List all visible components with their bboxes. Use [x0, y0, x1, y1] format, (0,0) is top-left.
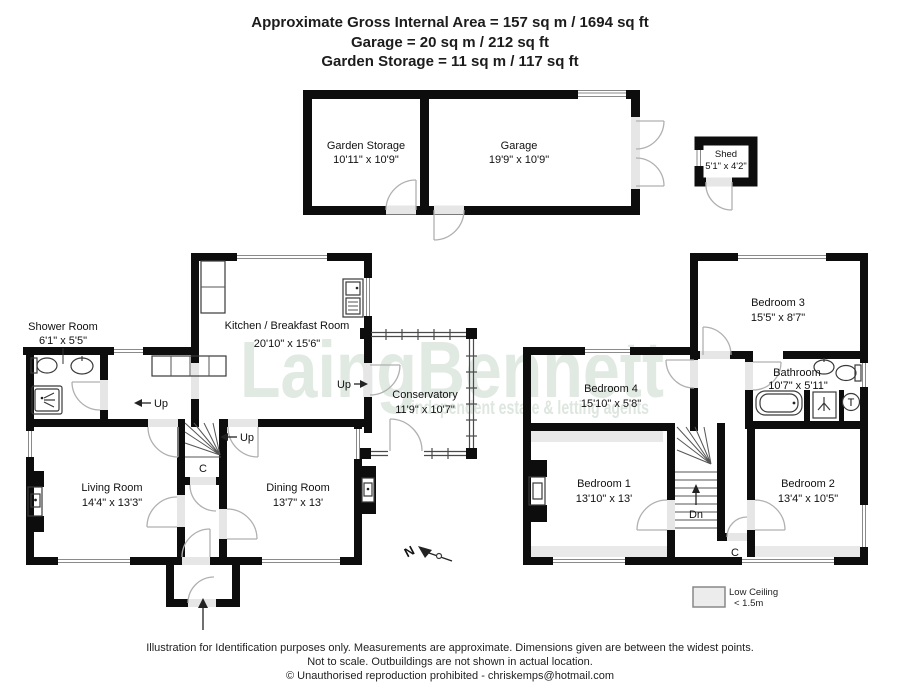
bedroom3-window: [738, 253, 826, 261]
north-arrow: N: [402, 543, 452, 561]
shower-room-basin: [71, 356, 93, 374]
disclaimer-line-2: Not to scale. Outbuildings are not shown…: [0, 655, 900, 669]
water-tank: T: [843, 394, 860, 411]
porch-inner-door: [182, 529, 210, 565]
bedroom4-label: Bedroom 4: [584, 383, 638, 395]
down-label: Dn: [689, 509, 703, 521]
kitchen-side-window: [364, 278, 372, 316]
bathroom-label: Bathroom: [773, 367, 821, 379]
understairs-cupboard-door: [190, 477, 216, 511]
legend-value: < 1.5m: [734, 598, 763, 609]
bathroom-shower: [813, 392, 836, 418]
legend-title: Low Ceiling: [729, 587, 778, 598]
shower-room-label: Shower Room: [28, 321, 98, 333]
svg-text:Up: Up: [154, 398, 168, 410]
landing-cupboard-label: C: [731, 547, 739, 559]
svg-text:Up: Up: [337, 379, 351, 391]
shed-label: Shed: [715, 149, 737, 160]
kitchen-sink: [343, 279, 363, 317]
bedroom4-dims: 15'10" x 5'8": [581, 398, 641, 410]
kitchen-label: Kitchen / Breakfast Room: [225, 320, 350, 332]
landing-cupboard-door: [727, 517, 747, 541]
conservatory-label: Conservatory: [392, 389, 458, 401]
living-room-label: Living Room: [81, 482, 142, 494]
low-ceiling-band-3: [755, 546, 860, 557]
conservatory-garden-door: [390, 419, 422, 451]
ground-stairs: [185, 423, 221, 457]
bathroom-toilet: [836, 365, 861, 381]
bedroom2-label: Bedroom 2: [781, 478, 835, 490]
shower-room-toilet: [31, 358, 57, 373]
garage-double-doors: [631, 117, 664, 189]
svg-text:T: T: [848, 397, 855, 409]
floorplan-page: Approximate Gross Internal Area = 157 sq…: [0, 0, 900, 697]
floorplan-drawing: LaingBennett independent estate & lettin…: [0, 0, 900, 697]
low-ceiling-band-2: [531, 546, 669, 557]
ground-floor-plan: Shower Room 6'1" x 5'5" Kitchen / Breakf…: [23, 253, 477, 630]
shed-window: [695, 150, 704, 166]
bedroom1-window-bottom: [553, 557, 625, 565]
shower-room-dims: 6'1" x 5'5": [39, 335, 87, 347]
bath: [756, 391, 802, 415]
living-window-bottom: [58, 557, 130, 565]
kitchen-hall-opening: [191, 363, 199, 399]
garden-storage-label: Garden Storage: [327, 140, 405, 152]
dining-window-bottom: [262, 557, 340, 565]
bathroom-dims: 10'7" x 5'11": [768, 380, 828, 392]
bedroom2-window-right: [860, 505, 868, 547]
bedroom1-label: Bedroom 1: [577, 478, 631, 490]
svg-text:Up: Up: [240, 432, 254, 444]
ground-cupboard-label: C: [199, 463, 207, 475]
bedroom4-door: [666, 360, 698, 388]
low-ceiling-band-1: [531, 431, 663, 442]
shower-tray: [32, 386, 62, 414]
conservatory-dims: 11'9" x 10'7": [395, 404, 455, 416]
low-ceiling-legend: Low Ceiling < 1.5m: [693, 587, 778, 609]
disclaimer-line-3: © Unauthorised reproduction prohibited -…: [0, 669, 900, 683]
dining-room-dims: 13'7" x 13': [273, 497, 323, 509]
north-label: N: [402, 543, 417, 561]
garage-side-door: [434, 206, 464, 241]
hall-steps: [152, 356, 226, 376]
living-door-corridor: [147, 495, 185, 527]
living-room-dims: 14'4" x 13'3": [82, 497, 142, 509]
living-door-hall: [148, 419, 178, 457]
kitchen-window: [237, 253, 327, 261]
garage-dims: 19'9" x 10'9": [489, 154, 549, 166]
bedroom2-dims: 13'4" x 10'5": [778, 493, 838, 505]
bedroom3-label: Bedroom 3: [751, 297, 805, 309]
garage-label: Garage: [501, 140, 538, 152]
bedroom3-dims: 15'5" x 8'7": [751, 312, 805, 324]
dining-door-corridor: [219, 509, 257, 539]
bedroom3-door: [700, 327, 731, 359]
disclaimer: Illustration for Identification purposes…: [0, 641, 900, 684]
living-window-left-1: [26, 431, 34, 457]
bedroom4-window: [585, 347, 630, 355]
shed-dims: 5'1" x 4'2": [705, 161, 747, 172]
bedroom1-dims: 13'10" x 13': [576, 493, 632, 505]
garage-window: [578, 91, 626, 100]
hall-window: [114, 347, 143, 355]
disclaimer-line-1: Illustration for Identification purposes…: [0, 641, 900, 655]
first-floor-stairs: Dn: [675, 427, 717, 528]
shower-door: [72, 380, 108, 410]
garden-storage-dims: 10'11" x 10'9": [333, 154, 399, 166]
dining-fireplace: [360, 466, 376, 514]
garden-storage-door: [386, 180, 416, 215]
bedroom2-window-bottom: [742, 557, 834, 565]
up-label-hall: Up: [134, 398, 168, 410]
low-ceiling-swatch: [693, 587, 725, 607]
dining-room-label: Dining Room: [266, 482, 330, 494]
kitchen-counter: [201, 261, 225, 313]
shed-door: [706, 178, 732, 211]
kitchen-dims: 20'10" x 15'6": [254, 338, 321, 350]
shed: Shed 5'1" x 4'2": [695, 141, 754, 210]
outbuilding-garage-block: Garden Storage 10'11" x 10'9" Garage 19'…: [308, 91, 665, 241]
bedroom1-door: [637, 500, 675, 530]
